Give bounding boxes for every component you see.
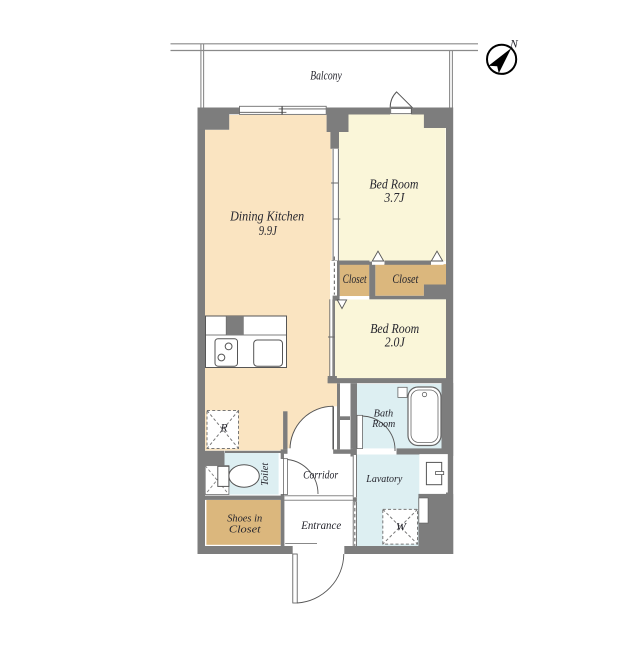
svg-text:9.9J: 9.9J <box>259 224 278 239</box>
svg-text:Balcony: Balcony <box>310 68 342 83</box>
svg-text:W: W <box>396 520 407 534</box>
svg-text:N: N <box>509 39 519 51</box>
svg-text:Corridor: Corridor <box>303 470 338 482</box>
svg-text:Shoes in: Shoes in <box>227 513 262 524</box>
svg-text:Closet: Closet <box>343 271 367 286</box>
svg-text:Closet: Closet <box>392 271 418 286</box>
svg-text:3.7J: 3.7J <box>384 191 406 206</box>
svg-text:Closet: Closet <box>229 525 262 536</box>
svg-text:Entrance: Entrance <box>300 520 341 532</box>
svg-text:Bed Room: Bed Room <box>369 177 418 192</box>
svg-text:2.0J: 2.0J <box>385 336 406 351</box>
svg-text:R: R <box>219 423 227 435</box>
svg-text:Room: Room <box>371 418 395 430</box>
svg-text:Bed Room: Bed Room <box>370 321 419 336</box>
svg-text:Dining Kitchen: Dining Kitchen <box>229 210 304 225</box>
svg-text:Lavatory: Lavatory <box>365 473 402 485</box>
svg-text:Toilet: Toilet <box>260 462 271 486</box>
